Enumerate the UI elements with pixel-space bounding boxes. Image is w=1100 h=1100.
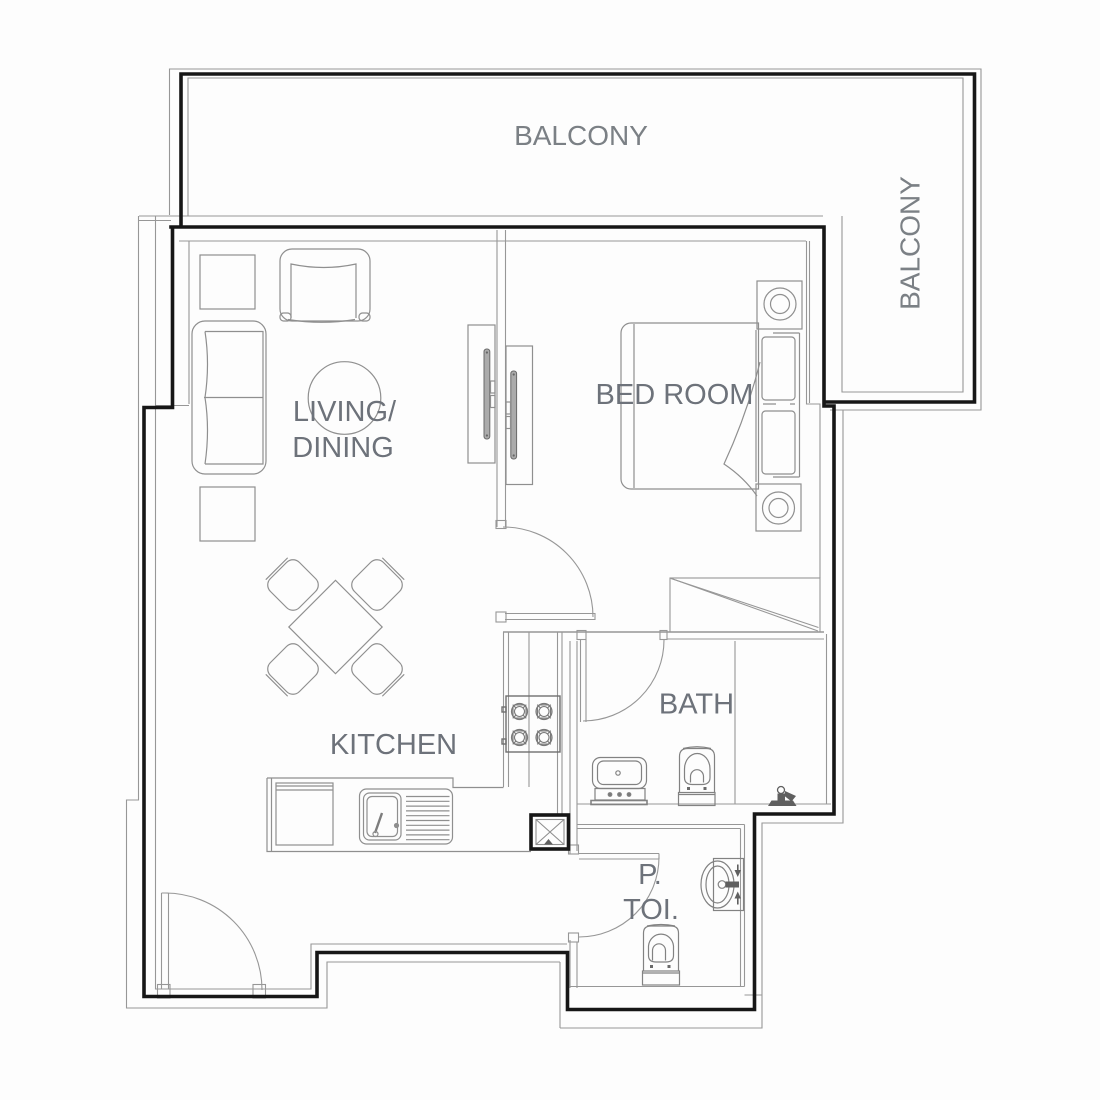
svg-text:BALCONY: BALCONY xyxy=(895,176,926,310)
svg-text:TOI.: TOI. xyxy=(623,894,679,926)
svg-text:BATH: BATH xyxy=(659,689,734,721)
svg-text:BALCONY: BALCONY xyxy=(514,120,648,151)
svg-text:KITCHEN: KITCHEN xyxy=(330,729,457,761)
svg-text:LIVING/: LIVING/ xyxy=(293,396,397,428)
svg-text:DINING: DINING xyxy=(292,432,394,464)
svg-text:P.: P. xyxy=(638,859,662,891)
svg-text:BED ROOM: BED ROOM xyxy=(596,379,754,411)
